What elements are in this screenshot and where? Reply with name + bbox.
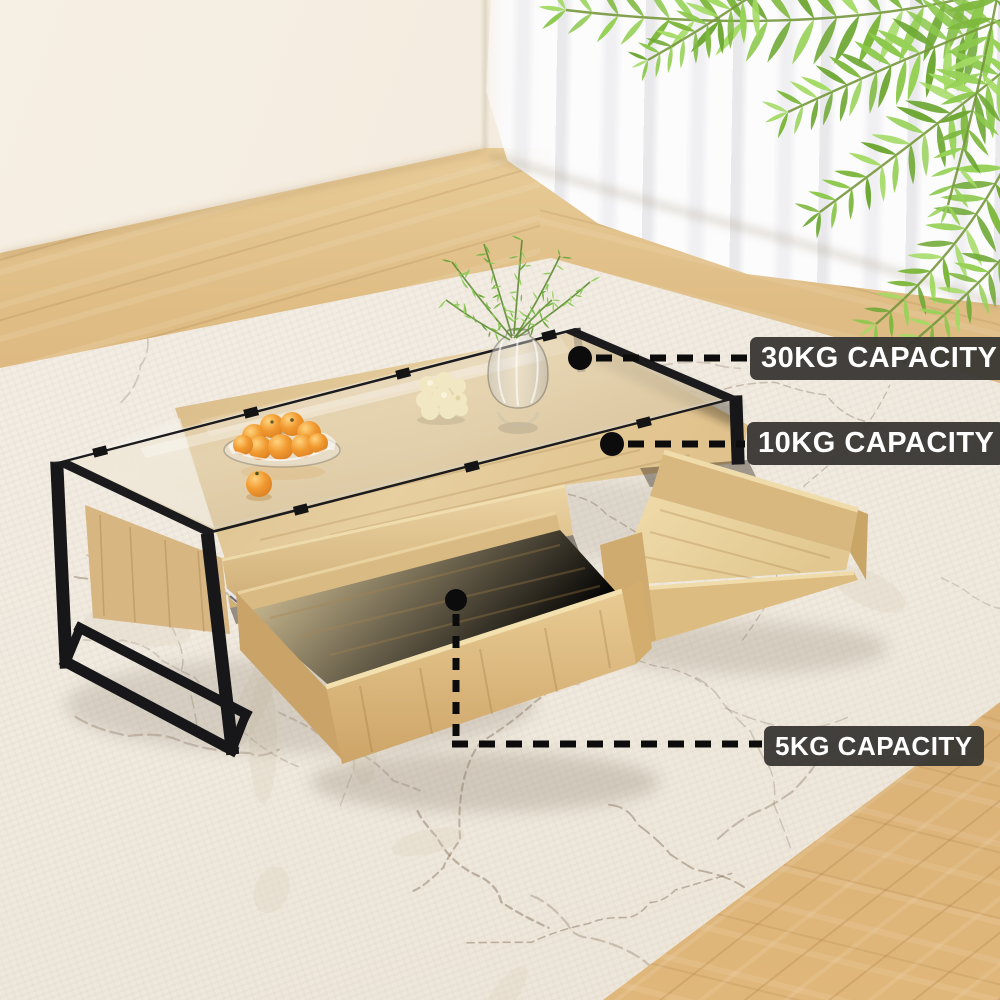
leg-right-post — [736, 402, 738, 458]
leg-front-left — [57, 468, 66, 662]
bubble-candle — [416, 372, 468, 425]
callout-dot-drawer — [445, 589, 467, 611]
label-5kg-capacity: 5KG CAPACITY — [764, 726, 984, 766]
loose-orange — [246, 471, 272, 501]
vase-plant-sprigs — [438, 235, 601, 343]
callout-dot-glass-top — [568, 346, 592, 370]
palm-plant — [538, 0, 1000, 368]
callout-dot-middle-shelf — [600, 432, 624, 456]
label-10kg-capacity: 10KG CAPACITY — [747, 422, 1000, 465]
label-30kg-capacity: 30KG CAPACITY — [750, 337, 1000, 380]
scene-illustration — [0, 0, 1000, 1000]
product-photo-stage: 30KG CAPACITY 10KG CAPACITY 5KG CAPACITY — [0, 0, 1000, 1000]
